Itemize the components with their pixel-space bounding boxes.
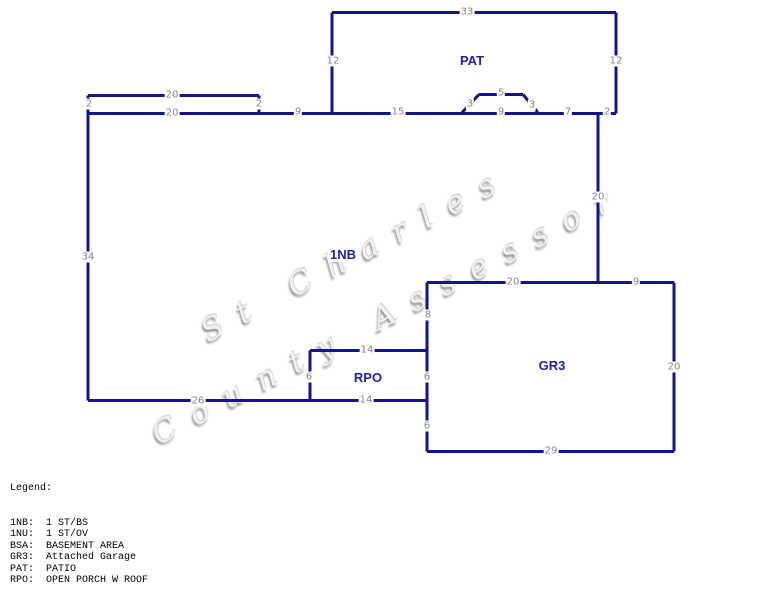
area-label-gr3: GR3 <box>537 359 568 373</box>
dimension-label: 15 <box>391 107 406 118</box>
legend-code: 1NU: <box>10 529 46 541</box>
watermark-line-2: County Assessor <box>146 176 633 453</box>
dimension-label: 20 <box>165 90 180 101</box>
dimension-label: 6 <box>423 421 431 432</box>
dimension-label: 3 <box>466 99 474 110</box>
legend-description: 1 ST/OV <box>46 529 88 540</box>
dimension-label: 6 <box>423 372 431 383</box>
legend-code: RPO: <box>10 575 46 587</box>
area-label-rpo: RPO <box>352 371 384 385</box>
legend-row-bsa: BSA:BASEMENT AREA <box>10 541 148 553</box>
dimension-label: 14 <box>359 395 374 406</box>
legend-code: GR3: <box>10 552 46 564</box>
legend-description: BASEMENT AREA <box>46 541 124 552</box>
dimension-label: 12 <box>609 56 624 67</box>
dimension-label: 29 <box>544 446 559 457</box>
dimension-label: 2 <box>603 107 611 118</box>
dimension-label: 9 <box>497 107 505 118</box>
legend: Legend: 1NB:1 ST/BS1NU:1 ST/OVBSA:BASEME… <box>10 460 148 610</box>
legend-code: 1NB: <box>10 518 46 530</box>
dimension-label: 3 <box>528 100 536 111</box>
legend-row-1nu: 1NU:1 ST/OV <box>10 529 148 541</box>
legend-code: BSA: <box>10 541 46 553</box>
dimension-label: 20 <box>165 108 180 119</box>
dimension-label: 20 <box>667 362 682 373</box>
legend-row-pat: PAT:PATIO <box>10 564 148 576</box>
dimension-label: 7 <box>564 107 572 118</box>
legend-description: 1 ST/BS <box>46 518 88 529</box>
dimension-label: 20 <box>506 277 521 288</box>
area-label-1nb: 1NB <box>328 248 358 262</box>
legend-description: Attached Garage <box>46 552 136 563</box>
dimension-label: 5 <box>497 88 505 99</box>
dimension-label: 2 <box>255 99 263 110</box>
dimension-label: 34 <box>81 252 96 263</box>
dimension-label: 9 <box>294 107 302 118</box>
area-label-pat: PAT <box>458 54 486 68</box>
legend-row-rpo: RPO:OPEN PORCH W ROOF <box>10 575 148 587</box>
legend-row-gr3: GR3:Attached Garage <box>10 552 148 564</box>
dimension-label: 6 <box>305 372 313 383</box>
legend-code: PAT: <box>10 564 46 576</box>
legend-title: Legend: <box>10 483 148 495</box>
wall-segment-main-house <box>88 399 427 402</box>
dimension-label: 8 <box>424 310 432 321</box>
legend-entries: 1NB:1 ST/BS1NU:1 ST/OVBSA:BASEMENT AREAG… <box>10 518 148 587</box>
legend-description: PATIO <box>46 564 76 575</box>
dimension-label: 2 <box>85 99 93 110</box>
legend-row-1nb: 1NB:1 ST/BS <box>10 518 148 530</box>
property-sketch-canvas: St Charles County Assessor 3312122022209… <box>0 0 762 557</box>
legend-description: OPEN PORCH W ROOF <box>46 575 148 586</box>
dimension-label: 12 <box>326 56 341 67</box>
dimension-label: 33 <box>460 7 475 18</box>
dimension-label: 9 <box>632 277 640 288</box>
dimension-label: 14 <box>360 345 375 356</box>
dimension-label: 20 <box>591 192 606 203</box>
dimension-label: 26 <box>191 396 206 407</box>
